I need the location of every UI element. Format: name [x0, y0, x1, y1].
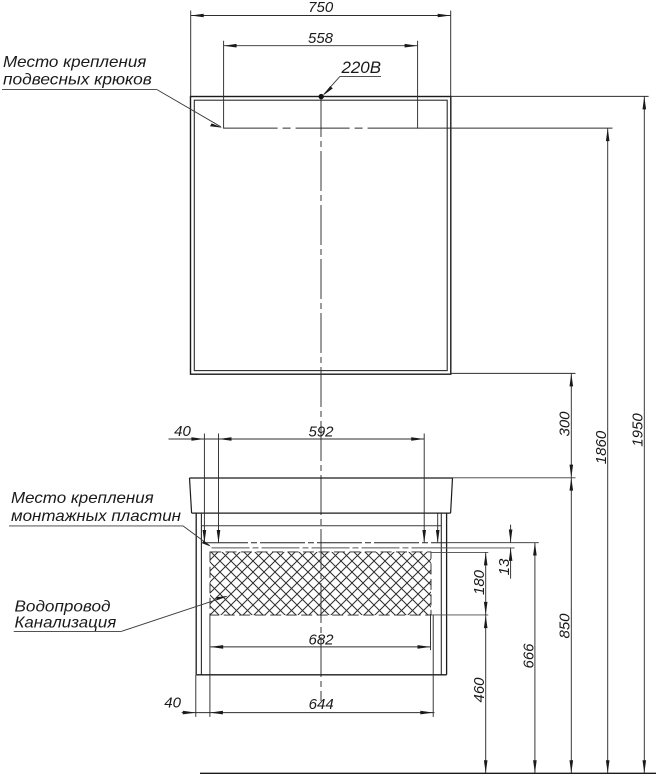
svg-text:Место крепления: Место крепления — [11, 490, 154, 507]
svg-text:1950: 1950 — [630, 413, 647, 447]
svg-text:220В: 220В — [340, 59, 381, 77]
svg-text:180: 180 — [471, 569, 488, 595]
svg-text:460: 460 — [471, 677, 488, 703]
svg-text:40: 40 — [174, 423, 191, 440]
svg-text:850: 850 — [557, 613, 574, 639]
svg-text:300: 300 — [557, 411, 574, 437]
svg-text:666: 666 — [520, 643, 537, 669]
svg-text:подвесных крюков: подвесных крюков — [3, 72, 152, 89]
svg-text:40: 40 — [164, 695, 181, 712]
svg-text:Место крепления: Место крепления — [3, 54, 147, 71]
svg-text:Канализация: Канализация — [15, 615, 117, 632]
svg-text:750: 750 — [308, 0, 334, 16]
svg-text:558: 558 — [308, 30, 334, 47]
svg-text:592: 592 — [308, 424, 334, 441]
svg-text:13: 13 — [496, 558, 513, 575]
svg-text:1860: 1860 — [593, 430, 610, 464]
svg-text:Водопровод: Водопровод — [15, 598, 111, 615]
svg-text:монтажных пластин: монтажных пластин — [11, 508, 181, 525]
svg-text:682: 682 — [308, 632, 334, 649]
svg-text:644: 644 — [309, 696, 334, 713]
